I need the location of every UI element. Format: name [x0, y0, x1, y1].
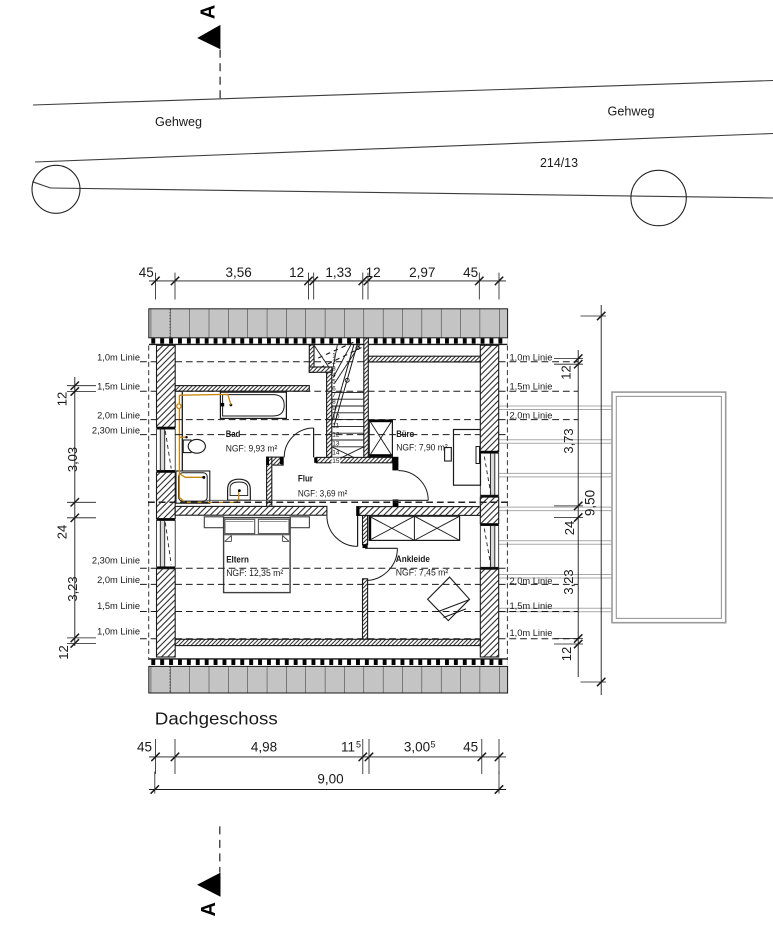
svg-text:2,0m Linie: 2,0m Linie [97, 575, 140, 585]
svg-text:15: 15 [332, 458, 340, 465]
svg-text:12: 12 [289, 265, 304, 280]
svg-text:3,23: 3,23 [65, 576, 80, 601]
svg-text:Dachgeschoss: Dachgeschoss [155, 709, 278, 729]
svg-text:14: 14 [332, 449, 340, 456]
svg-text:12: 12 [56, 645, 71, 659]
svg-text:2,0m Linie: 2,0m Linie [510, 576, 553, 586]
svg-text:Ankleide: Ankleide [396, 554, 430, 564]
svg-text:1,0m Linie: 1,0m Linie [510, 353, 553, 363]
svg-text:11: 11 [332, 423, 339, 430]
svg-text:Gehweg: Gehweg [608, 104, 655, 119]
svg-text:3,03: 3,03 [65, 447, 80, 472]
svg-text:2,30m Linie: 2,30m Linie [92, 426, 140, 436]
svg-text:Büro: Büro [396, 429, 415, 439]
svg-text:45: 45 [139, 265, 154, 280]
svg-text:Gehweg: Gehweg [155, 114, 202, 129]
svg-text:3,73: 3,73 [561, 428, 576, 453]
svg-text:24: 24 [55, 525, 70, 539]
svg-text:12: 12 [559, 647, 574, 661]
svg-text:214/13: 214/13 [540, 156, 578, 170]
svg-text:1,33: 1,33 [325, 265, 351, 280]
svg-text:A: A [198, 5, 220, 19]
svg-text:1,5m Linie: 1,5m Linie [510, 382, 553, 392]
svg-text:12: 12 [559, 365, 574, 379]
svg-text:12: 12 [55, 392, 70, 406]
svg-text:11: 11 [341, 740, 355, 755]
svg-text:9,50: 9,50 [583, 490, 598, 516]
svg-text:2,0m Linie: 2,0m Linie [97, 411, 140, 421]
svg-text:24: 24 [562, 521, 577, 535]
svg-text:2,97: 2,97 [409, 265, 435, 280]
svg-text:5: 5 [431, 740, 436, 750]
svg-text:3,23: 3,23 [561, 569, 576, 594]
svg-text:45: 45 [137, 740, 152, 755]
svg-text:Bad: Bad [226, 429, 241, 439]
svg-text:9,00: 9,00 [317, 772, 343, 787]
svg-text:Eltern: Eltern [226, 554, 249, 564]
svg-text:1,0m Linie: 1,0m Linie [97, 353, 140, 363]
svg-text:NGF: 9,93 m²: NGF: 9,93 m² [226, 443, 277, 453]
svg-text:NGF: 12,35 m²: NGF: 12,35 m² [226, 568, 283, 578]
svg-text:Flur: Flur [298, 473, 313, 483]
svg-text:12: 12 [366, 265, 381, 280]
svg-text:13: 13 [332, 440, 340, 447]
svg-text:2,0m Linie: 2,0m Linie [510, 411, 553, 421]
svg-text:45: 45 [463, 740, 478, 755]
svg-text:4,98: 4,98 [251, 740, 277, 755]
svg-text:A: A [198, 902, 220, 916]
svg-text:1,0m Linie: 1,0m Linie [97, 627, 140, 637]
svg-text:NGF: 3,69 m²: NGF: 3,69 m² [298, 488, 348, 498]
svg-text:9: 9 [332, 405, 336, 412]
svg-text:1,5m Linie: 1,5m Linie [97, 382, 140, 392]
svg-text:1,5m Linie: 1,5m Linie [97, 601, 140, 611]
svg-text:1,5m Linie: 1,5m Linie [510, 601, 553, 611]
svg-text:NGF: 7,90 m²: NGF: 7,90 m² [396, 443, 448, 453]
svg-text:NGF: 7,45 m²: NGF: 7,45 m² [396, 568, 449, 578]
svg-text:2,30m Linie: 2,30m Linie [92, 555, 140, 565]
svg-text:45: 45 [463, 265, 478, 280]
svg-text:1,0m Linie: 1,0m Linie [510, 628, 553, 638]
svg-text:3,00: 3,00 [404, 740, 430, 755]
svg-text:5: 5 [356, 740, 361, 750]
svg-text:3,56: 3,56 [225, 265, 251, 280]
